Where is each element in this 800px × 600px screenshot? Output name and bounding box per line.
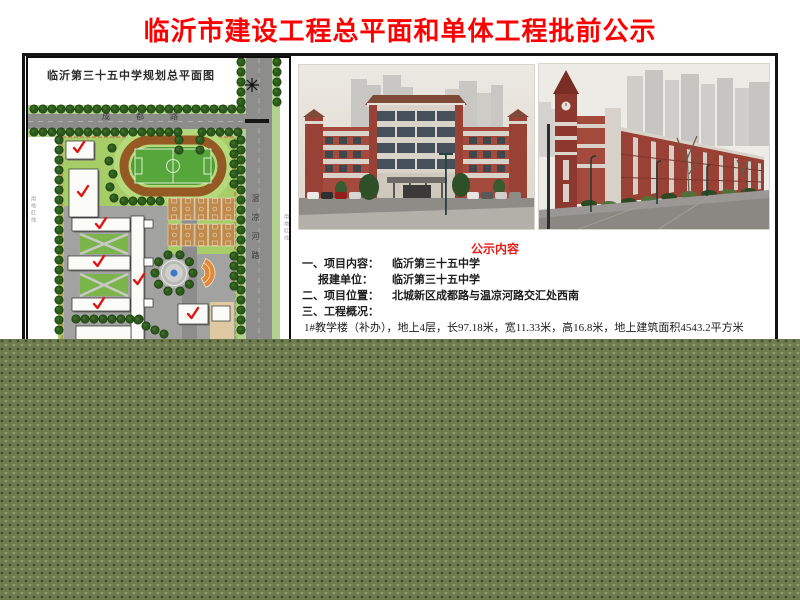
notice-page: 临沂市建设工程总平面和单体工程批前公示	[0, 0, 800, 600]
school-side-photo	[538, 63, 770, 230]
plan-symbol	[245, 78, 259, 92]
notice-line-label: 三、工程概况：	[302, 303, 379, 319]
notice-line-label: 一、项目内容：	[302, 255, 379, 271]
notice-line-value: 北城新区成都路与温凉河路交汇处西南	[392, 287, 579, 303]
plan-title: 临沂第三十五中学规划总平面图	[47, 67, 215, 83]
notice-line-value: 临沂第三十五中学	[392, 255, 480, 271]
boundary-annotation-right: 用地红线	[282, 214, 289, 242]
clock-tower	[553, 70, 579, 210]
site-plan: 临沂第三十五中学规划总平面图 成都路 温凉河路 用地红线 用地红线	[26, 56, 291, 352]
unloaded-region-overlay	[0, 339, 800, 600]
boundary-annotation-left: 用地红线	[29, 196, 36, 224]
notice-line-value: 1#教学楼（补办），地上4层，长97.18米，宽11.33米，高16.8米，地上…	[304, 319, 744, 335]
school-front-photo	[298, 64, 535, 230]
road-label-wenlianghe: 温凉河路	[250, 194, 261, 270]
page-title: 临沂市建设工程总平面和单体工程批前公示	[0, 11, 800, 48]
notice-line-label: 二、项目位置：	[302, 287, 379, 303]
notice-line-label: 报建单位：	[318, 271, 373, 287]
notice-line-value: 临沂第三十五中学	[392, 271, 480, 287]
road-label-chengdu: 成都路	[102, 111, 204, 122]
